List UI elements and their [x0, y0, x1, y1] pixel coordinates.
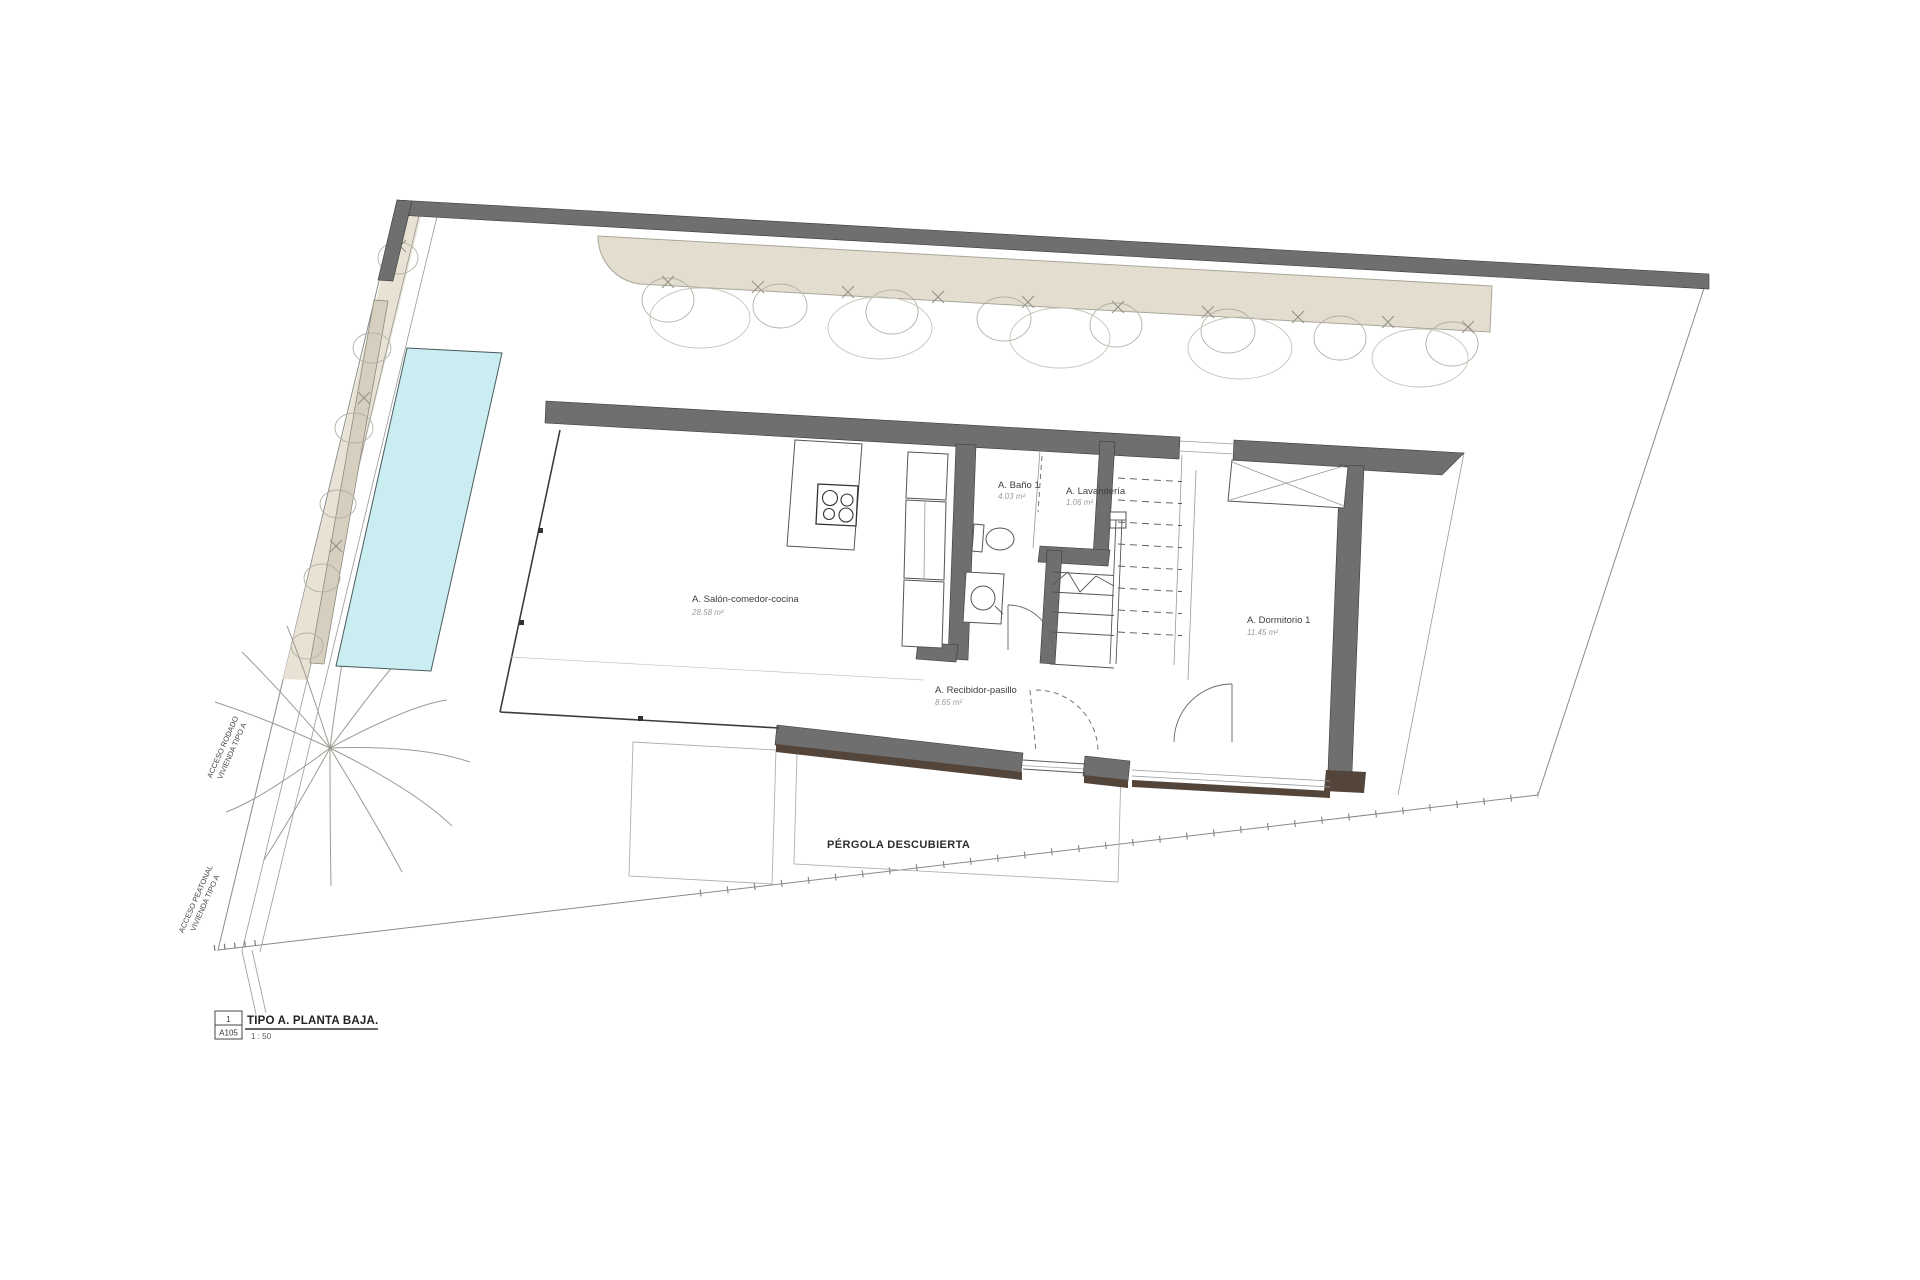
- burner: [824, 509, 835, 520]
- room-label-laundry: A. Lavandería: [1066, 486, 1126, 497]
- room-area-living: 28.58 m²: [691, 608, 724, 617]
- room-area-bath: 4.03 m²: [998, 492, 1025, 501]
- burner: [823, 491, 838, 506]
- toilet-bowl: [986, 528, 1014, 550]
- drawing-scale: 1 : 50: [251, 1032, 272, 1041]
- room-area-bedroom: 11.45 m²: [1247, 628, 1278, 637]
- drawing-title: TIPO A. PLANTA BAJA.: [247, 1015, 378, 1027]
- floor-plan-drawing: PÉRGOLA DESCUBIERTA: [0, 0, 1920, 1280]
- room-label-bedroom: A. Dormitorio 1: [1247, 615, 1310, 626]
- pergola-label: PÉRGOLA DESCUBIERTA: [827, 838, 970, 851]
- access-label-rodado: ACCESO RODADO VIVIENDA TIPO A: [205, 715, 250, 784]
- toilet-tank: [972, 524, 984, 552]
- room-area-laundry: 1.06 m²: [1066, 498, 1093, 507]
- wall-shadow: [1324, 770, 1366, 793]
- access-label-peatonal: ACCESO PEATONAL VIVIENDA TIPO A: [177, 864, 224, 938]
- tall-cabinets: [902, 580, 944, 648]
- floor-plan-sheet: PÉRGOLA DESCUBIERTA: [0, 0, 1920, 1280]
- burner: [839, 508, 853, 522]
- room-label-living: A. Salón-comedor-cocina: [692, 594, 799, 605]
- laundry: [1110, 512, 1126, 528]
- tall-cabinets: [906, 452, 948, 500]
- sink: [971, 586, 995, 610]
- sheet-number: A105: [219, 1029, 238, 1038]
- room-label-hall: A. Recibidor-pasillo: [935, 685, 1017, 696]
- room-label-bath: A. Baño 1: [998, 480, 1040, 491]
- title-block: 1 A105 TIPO A. PLANTA BAJA. 1 : 50: [215, 1011, 378, 1041]
- detail-number: 1: [226, 1015, 231, 1024]
- bedroom-closet: [1228, 460, 1348, 508]
- room-area-hall: 8.65 m²: [935, 698, 962, 707]
- burner: [841, 494, 853, 506]
